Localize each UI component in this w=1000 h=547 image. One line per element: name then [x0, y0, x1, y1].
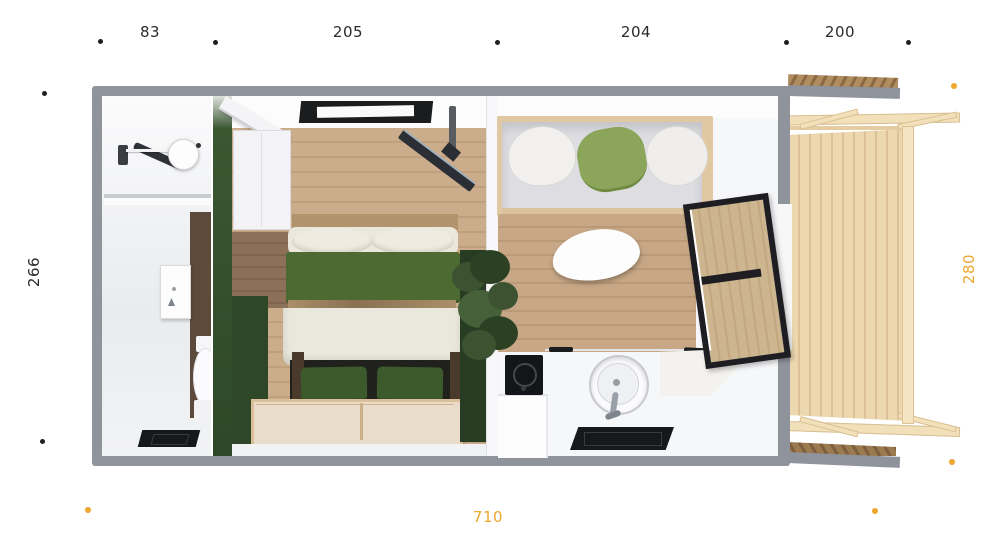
dimension-marker — [784, 40, 789, 45]
dimension-marker — [951, 83, 957, 89]
dimension-label-right: 280 — [959, 249, 979, 289]
dimension-marker — [85, 507, 91, 513]
dimension-marker — [98, 39, 103, 44]
dimension-marker — [872, 508, 878, 514]
dimension-label-left: 266 — [24, 252, 44, 292]
dimension-marker — [40, 439, 45, 444]
dimension-label-top-3: 204 — [611, 22, 661, 42]
dimension-marker — [213, 40, 218, 45]
dimension-label-top-4: 200 — [815, 22, 865, 42]
dimension-label-top-2: 205 — [323, 22, 373, 42]
floor-plan-page: { "dimensions": { "top": ["83", "205", "… — [0, 0, 1000, 547]
dimension-marker — [906, 40, 911, 45]
dimension-label-bottom: 710 — [463, 507, 513, 527]
dimension-marker — [42, 91, 47, 96]
dimension-annotations: 83 205 204 200 266 280 710 — [0, 0, 1000, 547]
dimension-label-top-1: 83 — [130, 22, 170, 42]
dimension-marker — [495, 40, 500, 45]
dimension-marker — [949, 459, 955, 465]
